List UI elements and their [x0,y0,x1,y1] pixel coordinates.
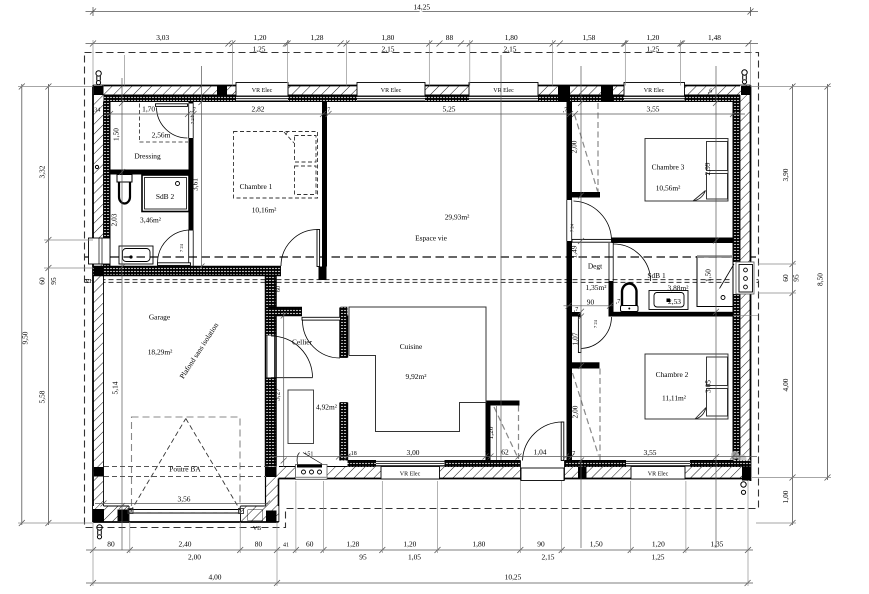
svg-text:3,46m²: 3,46m² [140,216,162,225]
svg-text:,7: ,7 [571,451,576,457]
svg-text:SdB 1: SdB 1 [647,271,666,280]
svg-text:2,00: 2,00 [570,140,579,153]
svg-text:1,04: 1,04 [534,448,547,457]
svg-text:Cuisine: Cuisine [400,342,423,351]
svg-text:4,00: 4,00 [209,573,222,582]
svg-text:62: 62 [501,448,509,457]
svg-text:1,35m²: 1,35m² [586,283,608,292]
svg-text:VR Elec: VR Elec [400,472,421,478]
svg-text:2,15: 2,15 [382,45,395,54]
svg-text:60: 60 [276,286,282,292]
svg-text:VR Elec: VR Elec [648,472,669,478]
svg-text:1,70: 1,70 [142,105,155,114]
svg-text:3,05: 3,05 [704,380,713,393]
svg-text:4,00: 4,00 [781,378,790,391]
svg-text:,7: ,7 [574,307,579,313]
svg-text:1,20: 1,20 [652,540,665,549]
svg-text:Espace vie: Espace vie [415,234,448,243]
svg-text:1,25: 1,25 [652,553,665,562]
svg-text:10,56m²: 10,56m² [656,184,681,193]
svg-text:3,88m²: 3,88m² [668,284,690,293]
svg-text:Degt: Degt [588,262,603,271]
svg-text:,18: ,18 [349,451,357,457]
svg-text:4,92m²: 4,92m² [316,403,338,412]
svg-text:95: 95 [49,277,58,285]
svg-text:,7: ,7 [191,108,196,114]
svg-text:1,80: 1,80 [381,33,394,42]
svg-text:2,99: 2,99 [703,162,712,175]
svg-text:3,00: 3,00 [407,448,420,457]
svg-text:1,50: 1,50 [112,128,121,141]
svg-text:SdB 2: SdB 2 [156,192,175,201]
svg-text:2,15: 2,15 [542,553,555,562]
svg-text:2,03: 2,03 [110,213,119,226]
svg-text:,34: ,34 [93,108,101,114]
svg-text:9,50: 9,50 [21,331,30,344]
svg-text:Dressing: Dressing [134,152,161,161]
svg-text:VH: VH [85,279,94,285]
svg-text:3,90: 3,90 [781,168,790,181]
svg-text:1,20: 1,20 [403,540,416,549]
svg-text:Chambre 3: Chambre 3 [652,163,685,172]
svg-text:1,49: 1,49 [570,245,579,258]
svg-text:9,92m²: 9,92m² [406,372,428,381]
svg-text:Cellier: Cellier [292,338,313,347]
svg-text:88: 88 [446,33,454,42]
svg-text:1,50: 1,50 [590,540,603,549]
svg-text:VR Elec: VR Elec [381,88,402,94]
svg-text:1,35: 1,35 [710,540,723,549]
svg-text:7 24: 7 24 [339,333,344,342]
svg-text:1,25: 1,25 [646,45,659,54]
svg-text:1,00: 1,00 [781,490,790,503]
svg-text:5,58: 5,58 [38,390,47,403]
svg-text:1,20: 1,20 [486,426,495,439]
svg-text:3,61: 3,61 [191,178,200,191]
svg-text:1,05: 1,05 [408,553,421,562]
svg-text:95: 95 [359,553,367,562]
svg-text:2,00: 2,00 [188,553,201,562]
svg-text:1,80: 1,80 [472,540,485,549]
svg-text:1,20: 1,20 [646,33,659,42]
svg-text:18,29m²: 18,29m² [148,348,173,357]
svg-text:2,40: 2,40 [179,540,192,549]
svg-text:3,27: 3,27 [273,388,282,401]
svg-text:1,58: 1,58 [582,33,595,42]
svg-text:VR Elec: VR Elec [644,88,665,94]
svg-text:Poutre BA: Poutre BA [169,465,201,474]
svg-text:80: 80 [255,540,263,549]
svg-text:1,07: 1,07 [571,332,580,345]
svg-text:VR Elec: VR Elec [493,88,514,94]
svg-text:95: 95 [792,274,801,282]
svg-text:90: 90 [587,298,595,307]
svg-text:2,15: 2,15 [504,45,517,54]
svg-text:,7: ,7 [616,299,621,305]
svg-text:2,82: 2,82 [252,105,265,114]
svg-text:1,25: 1,25 [253,45,266,54]
svg-text:VR Elec: VR Elec [252,88,273,94]
svg-text:1,28: 1,28 [346,540,359,549]
svg-text:,7: ,7 [563,108,568,114]
svg-text:5,25: 5,25 [443,105,456,114]
svg-text:60: 60 [306,540,314,549]
svg-text:3,32: 3,32 [38,165,47,178]
svg-text:,6: ,6 [708,89,713,95]
svg-text:1,48: 1,48 [708,33,721,42]
svg-text:10,25: 10,25 [505,573,522,582]
svg-text:41: 41 [283,543,289,549]
svg-text:5,14: 5,14 [111,381,120,394]
svg-text:80: 80 [107,540,115,549]
svg-text:90: 90 [537,540,545,549]
svg-text:60: 60 [781,274,790,282]
svg-text:60: 60 [38,277,47,285]
svg-text:7 24: 7 24 [593,319,598,328]
svg-text:7 24: 7 24 [190,115,195,124]
svg-text:2,53: 2,53 [668,297,681,306]
svg-text:Garage: Garage [149,313,171,322]
svg-text:3,55: 3,55 [647,105,660,114]
svg-text:14,25: 14,25 [413,3,430,12]
svg-text:VB: VB [253,526,261,532]
svg-text:8,50: 8,50 [816,273,825,286]
svg-text:11,11m²: 11,11m² [662,394,687,403]
svg-text:7 24: 7 24 [179,243,184,252]
svg-text:29,93m²: 29,93m² [445,213,470,222]
svg-text:1,80: 1,80 [505,33,518,42]
svg-text:Chambre 2: Chambre 2 [656,370,689,379]
svg-text:3,55: 3,55 [644,448,657,457]
svg-text:Chambre 1: Chambre 1 [240,182,273,191]
svg-text:,7: ,7 [326,108,331,114]
svg-text:1,20: 1,20 [254,33,267,42]
svg-text:1,50: 1,50 [704,269,713,282]
svg-text:7 24: 7 24 [570,223,575,232]
svg-text:3,56: 3,56 [178,495,191,504]
svg-text:2,00: 2,00 [571,405,580,418]
svg-text:1,28: 1,28 [311,33,324,42]
svg-text:3,03: 3,03 [156,33,169,42]
svg-text:7: 7 [485,451,488,457]
svg-text:2,56m: 2,56m [152,131,171,140]
svg-text:10,16m²: 10,16m² [252,206,277,215]
